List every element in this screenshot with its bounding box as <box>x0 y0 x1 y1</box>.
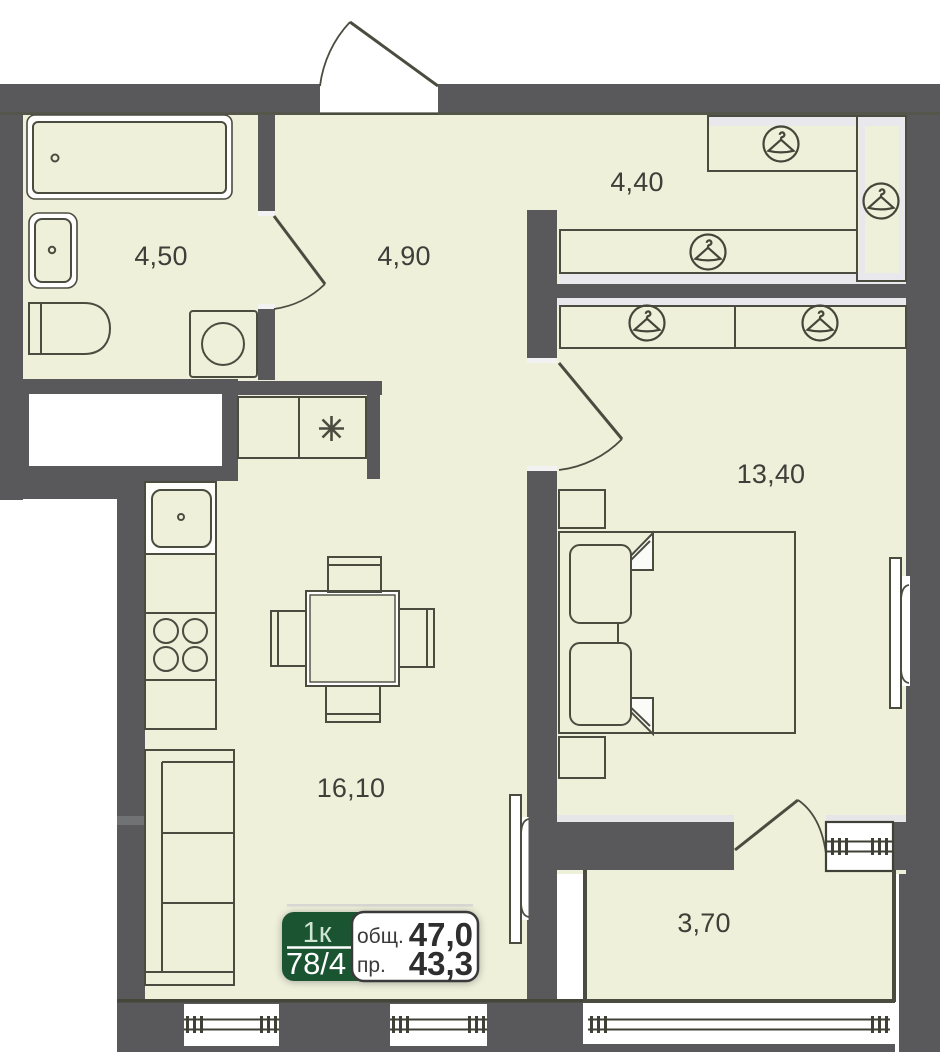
svg-text:общ.: общ. <box>357 925 404 948</box>
svg-text:13,40: 13,40 <box>737 459 806 489</box>
svg-text:43,3: 43,3 <box>409 945 473 982</box>
svg-text:1к: 1к <box>303 917 332 949</box>
svg-text:78/4: 78/4 <box>286 946 346 981</box>
svg-text:16,10: 16,10 <box>317 773 386 803</box>
svg-text:3,70: 3,70 <box>677 908 730 938</box>
svg-text:пр.: пр. <box>357 954 386 977</box>
svg-text:4,40: 4,40 <box>610 167 663 197</box>
svg-text:4,90: 4,90 <box>377 241 430 271</box>
svg-text:4,50: 4,50 <box>134 241 187 271</box>
